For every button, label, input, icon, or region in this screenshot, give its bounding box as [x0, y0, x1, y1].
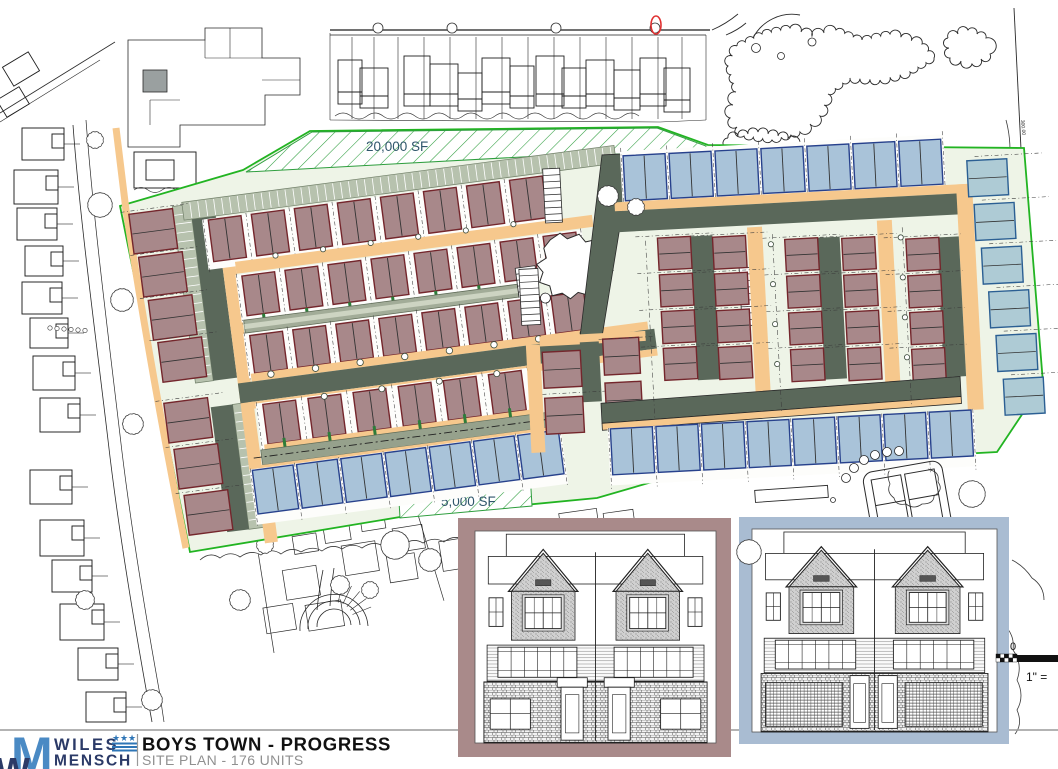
svg-text:MENSCH: MENSCH: [54, 753, 132, 769]
svg-text:W: W: [0, 750, 30, 769]
svg-text:1" =: 1" =: [1026, 670, 1047, 684]
svg-text:SITE PLAN - 176 UNITS: SITE PLAN - 176 UNITS: [142, 752, 304, 768]
svg-text:0: 0: [1010, 641, 1016, 653]
svg-text:★: ★: [120, 733, 128, 743]
svg-text:WILES: WILES: [54, 736, 119, 754]
svg-text:★: ★: [112, 733, 120, 743]
svg-text:★: ★: [128, 733, 136, 743]
svg-text:20,000 SF: 20,000 SF: [366, 139, 428, 154]
